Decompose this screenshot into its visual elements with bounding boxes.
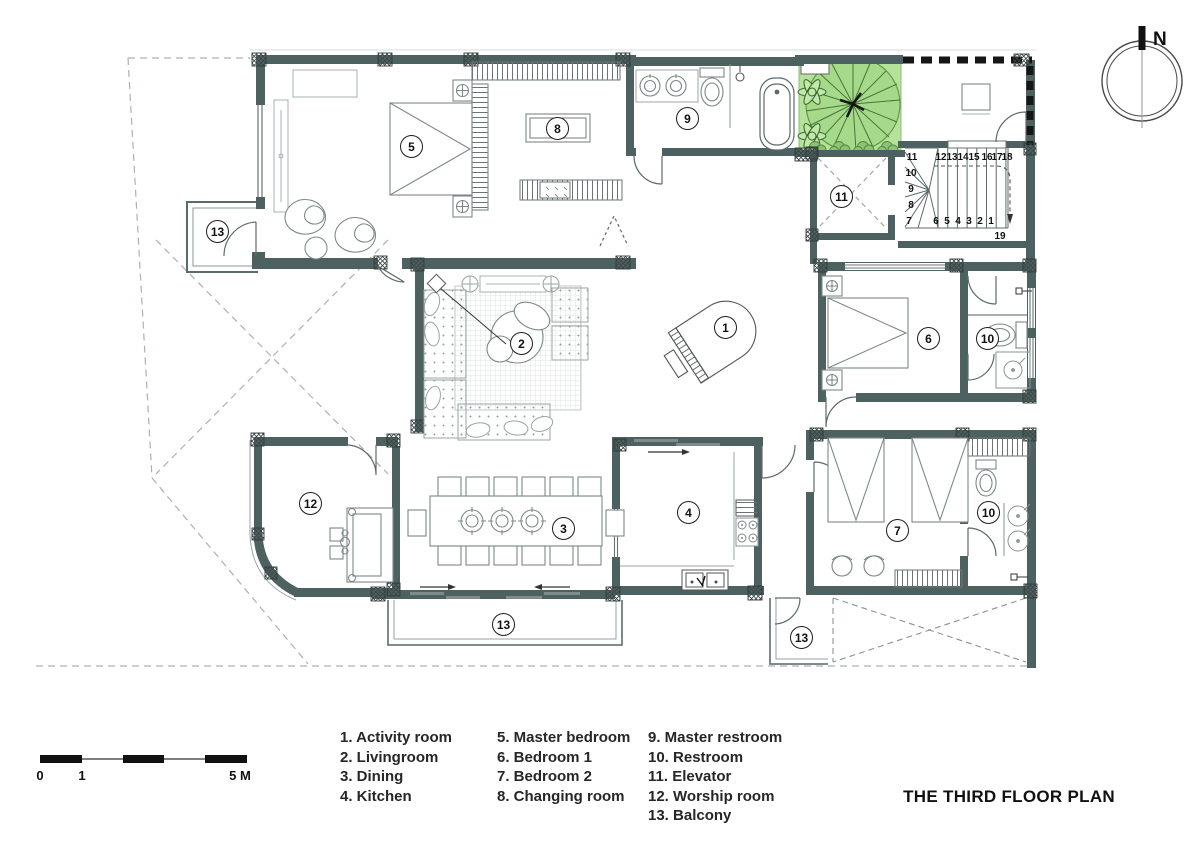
legend-column-1: 1. Activity room 2. Livingroom 3. Dining…: [340, 728, 490, 806]
door-arc: [826, 397, 856, 427]
legend-item: 10. Restroom: [648, 748, 818, 768]
legend-column-2: 5. Master bedroom 6. Bedroom 1 7. Bedroo…: [497, 728, 647, 806]
north-label: N: [1153, 29, 1167, 50]
roof-void-cross: [833, 598, 1026, 662]
legend-item: 11. Elevator: [648, 767, 818, 787]
curved-wall: [258, 535, 296, 592]
sink-icons: [1004, 503, 1030, 556]
stair-number: 5: [944, 216, 950, 227]
kitchen-sink-icon: [682, 570, 728, 590]
room-badge-worship-room: 12: [299, 492, 322, 515]
piano-icon: [655, 290, 767, 392]
door-arc: [224, 222, 256, 256]
room-badge-activity-room: 1: [714, 316, 737, 339]
legend-item: 5. Master bedroom: [497, 728, 647, 748]
stove-icon: [736, 500, 758, 546]
room-badge-balcony-left: 13: [206, 220, 229, 243]
room-badge-kitchen: 4: [677, 501, 700, 524]
legend-item: 1. Activity room: [340, 728, 490, 748]
scale-label-five-m: 5 M: [229, 768, 251, 783]
shower-sink: [996, 352, 1030, 388]
door-arc: [968, 354, 994, 380]
legend-item: 7. Bedroom 2: [497, 767, 647, 787]
stair-number: 4: [955, 216, 961, 227]
door-arc: [775, 598, 800, 624]
dining-table-icon: [408, 477, 624, 565]
room-badge-restroom-upper: 10: [976, 327, 999, 350]
legend-item: 3. Dining: [340, 767, 490, 787]
stair-number: 6: [933, 216, 939, 227]
stair-number: 14: [957, 152, 969, 163]
bed-icon: [828, 438, 968, 522]
vanity-sinks: [636, 70, 698, 102]
page-title: THE THIRD FLOOR PLAN: [903, 787, 1115, 807]
stair-number: 15: [968, 152, 980, 163]
toilet-icon: [700, 68, 724, 106]
door-arc: [762, 445, 795, 478]
legend-column-3: 9. Master restroom 10. Restroom 11. Elev…: [648, 728, 818, 826]
stair-number: 11: [907, 152, 918, 163]
room-badge-restroom-lower: 10: [977, 501, 1000, 524]
scale-label-zero: 0: [36, 768, 43, 783]
stair-number: 12: [935, 152, 947, 163]
room-badge-balcony-bottom: 13: [492, 613, 515, 636]
bed-icon: [822, 276, 908, 390]
legend-item: 2. Livingroom: [340, 748, 490, 768]
legend-item: 9. Master restroom: [648, 728, 818, 748]
tv-console: [274, 100, 288, 212]
toilet-icon: [976, 460, 996, 496]
room-badge-dining: 3: [552, 517, 575, 540]
stair-number: 8: [908, 200, 914, 211]
stair-number: 3: [966, 216, 972, 227]
stairs: 11 12 13 14 15 16 17 18 10 9 8 7 6 5 4 3…: [905, 148, 1013, 242]
window: [845, 263, 945, 270]
bathtub-icon: [760, 78, 794, 150]
stair-rail-gap: [948, 141, 1006, 148]
door-arc: [346, 445, 376, 475]
wardrobe-icon: [968, 438, 1030, 456]
legend-item: 4. Kitchen: [340, 787, 490, 807]
door-arc: [968, 276, 996, 304]
stair-number: 1: [988, 216, 994, 227]
floor-plan-drawing: 11 12 13 14 15 16 17 18 10 9 8 7 6 5 4 3…: [0, 0, 1191, 842]
north-compass: N: [1102, 26, 1182, 128]
folding-door: [600, 216, 628, 246]
scale-label-one: 1: [78, 768, 85, 783]
room-badge-balcony-small: 13: [790, 626, 813, 649]
courtyard-garden: [798, 57, 901, 156]
room-badge-bedroom-1: 6: [917, 327, 940, 350]
shower-head-icon: [736, 64, 744, 81]
wardrobe-icon: [895, 570, 962, 587]
legend-item: 8. Changing room: [497, 787, 647, 807]
window: [1028, 288, 1035, 328]
room-badge-master-bedroom: 5: [400, 135, 423, 158]
altar-icon: [330, 508, 393, 582]
stair-number: 18: [1001, 152, 1013, 163]
door-arc: [968, 528, 996, 556]
stair-number: 19: [994, 231, 1006, 242]
legend-item: 6. Bedroom 1: [497, 748, 647, 768]
scale-bar: 0 1 5 M: [36, 755, 250, 783]
stair-number: 10: [905, 168, 917, 179]
door-arc: [634, 156, 662, 184]
stair-number: 2: [977, 216, 983, 227]
stair-number: 7: [906, 216, 912, 227]
room-badge-changing-room: 8: [546, 117, 569, 140]
dresser: [293, 70, 357, 97]
beanbag-icons: [285, 200, 375, 259]
room-badge-livingroom: 2: [510, 332, 533, 355]
window: [1028, 338, 1035, 378]
door-arc: [996, 112, 1026, 142]
floor-plan-page: 11 12 13 14 15 16 17 18 10 9 8 7 6 5 4 3…: [0, 0, 1191, 842]
towel-rail: [1011, 574, 1028, 580]
stair-number: 13: [946, 152, 958, 163]
north-needle: [1139, 26, 1146, 50]
cabinet: [962, 84, 990, 114]
legend-item: 12. Worship room: [648, 787, 818, 807]
stair-number: 9: [908, 184, 914, 195]
room-badge-master-restroom: 9: [676, 107, 699, 130]
room-badge-elevator: 11: [830, 185, 853, 208]
legend-item: 13. Balcony: [648, 806, 818, 826]
chair-icons: [832, 556, 884, 576]
room-badge-bedroom-2: 7: [886, 519, 909, 542]
window: [255, 105, 266, 197]
